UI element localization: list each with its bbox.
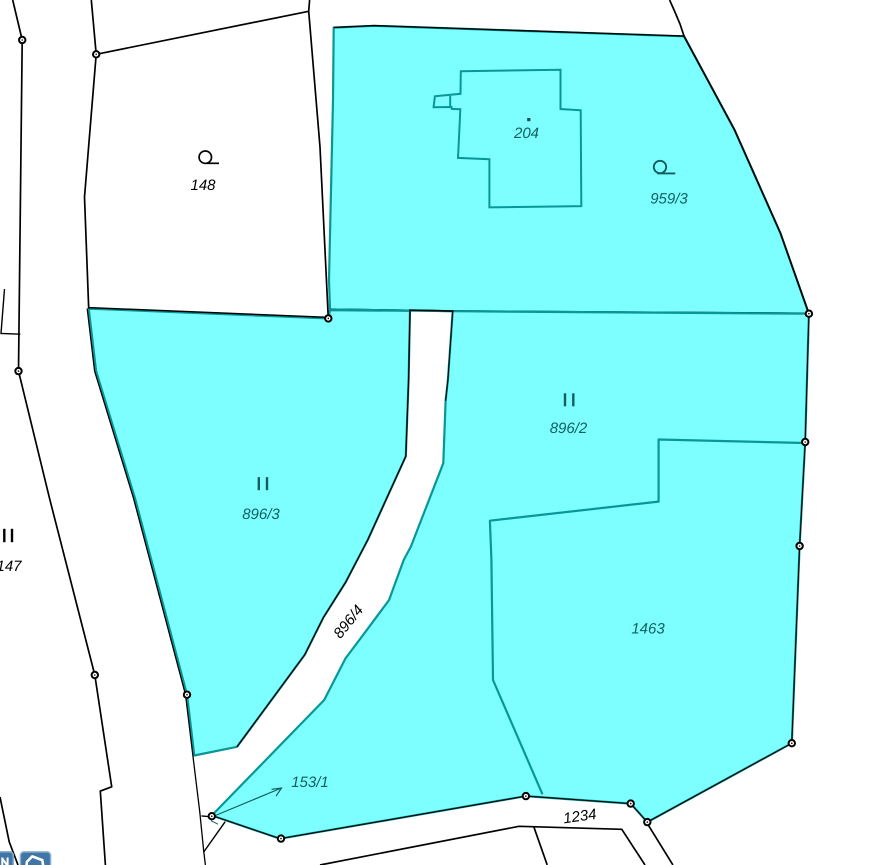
svg-text:896/2: 896/2	[550, 420, 588, 437]
svg-text:896/3: 896/3	[242, 506, 280, 523]
svg-text:147: 147	[0, 558, 22, 575]
svg-text:959/3: 959/3	[650, 191, 688, 208]
svg-text:1463: 1463	[631, 621, 665, 638]
svg-text:148: 148	[190, 177, 216, 194]
svg-text:153/1: 153/1	[291, 774, 329, 791]
svg-text:204: 204	[513, 125, 539, 142]
